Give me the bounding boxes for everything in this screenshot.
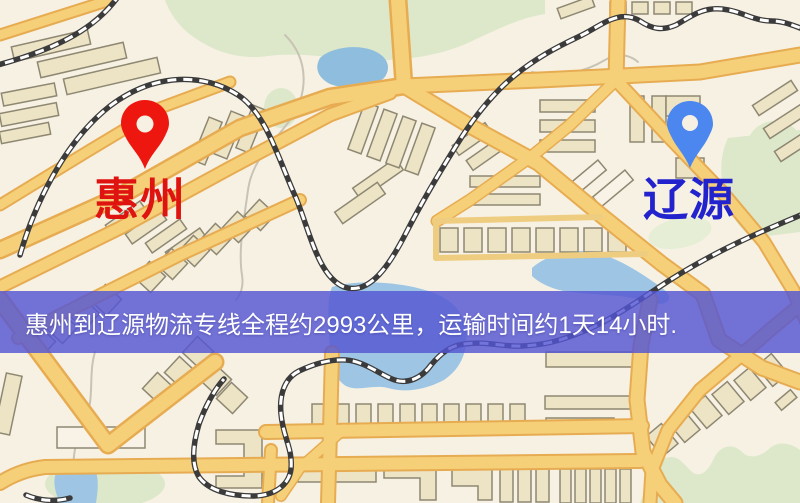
- map-canvas: [0, 0, 800, 503]
- route-info-text: 惠州到辽源物流专线全程约2993公里，运输时间约1天14小时.: [0, 305, 677, 340]
- map-view[interactable]: 惠州 辽源 惠州到辽源物流专线全程约2993公里，运输时间约1天14小时.: [0, 0, 800, 503]
- destination-pin-hole: [682, 115, 698, 131]
- destination-pin-icon: [667, 101, 713, 168]
- origin-pin[interactable]: [121, 100, 169, 169]
- route-info-banner: 惠州到辽源物流专线全程约2993公里，运输时间约1天14小时.: [0, 291, 800, 353]
- origin-label: 惠州: [94, 178, 186, 223]
- destination-label: 辽源: [643, 178, 735, 223]
- origin-pin-icon: [121, 100, 169, 169]
- origin-pin-hole: [137, 116, 154, 133]
- destination-pin[interactable]: [667, 101, 713, 168]
